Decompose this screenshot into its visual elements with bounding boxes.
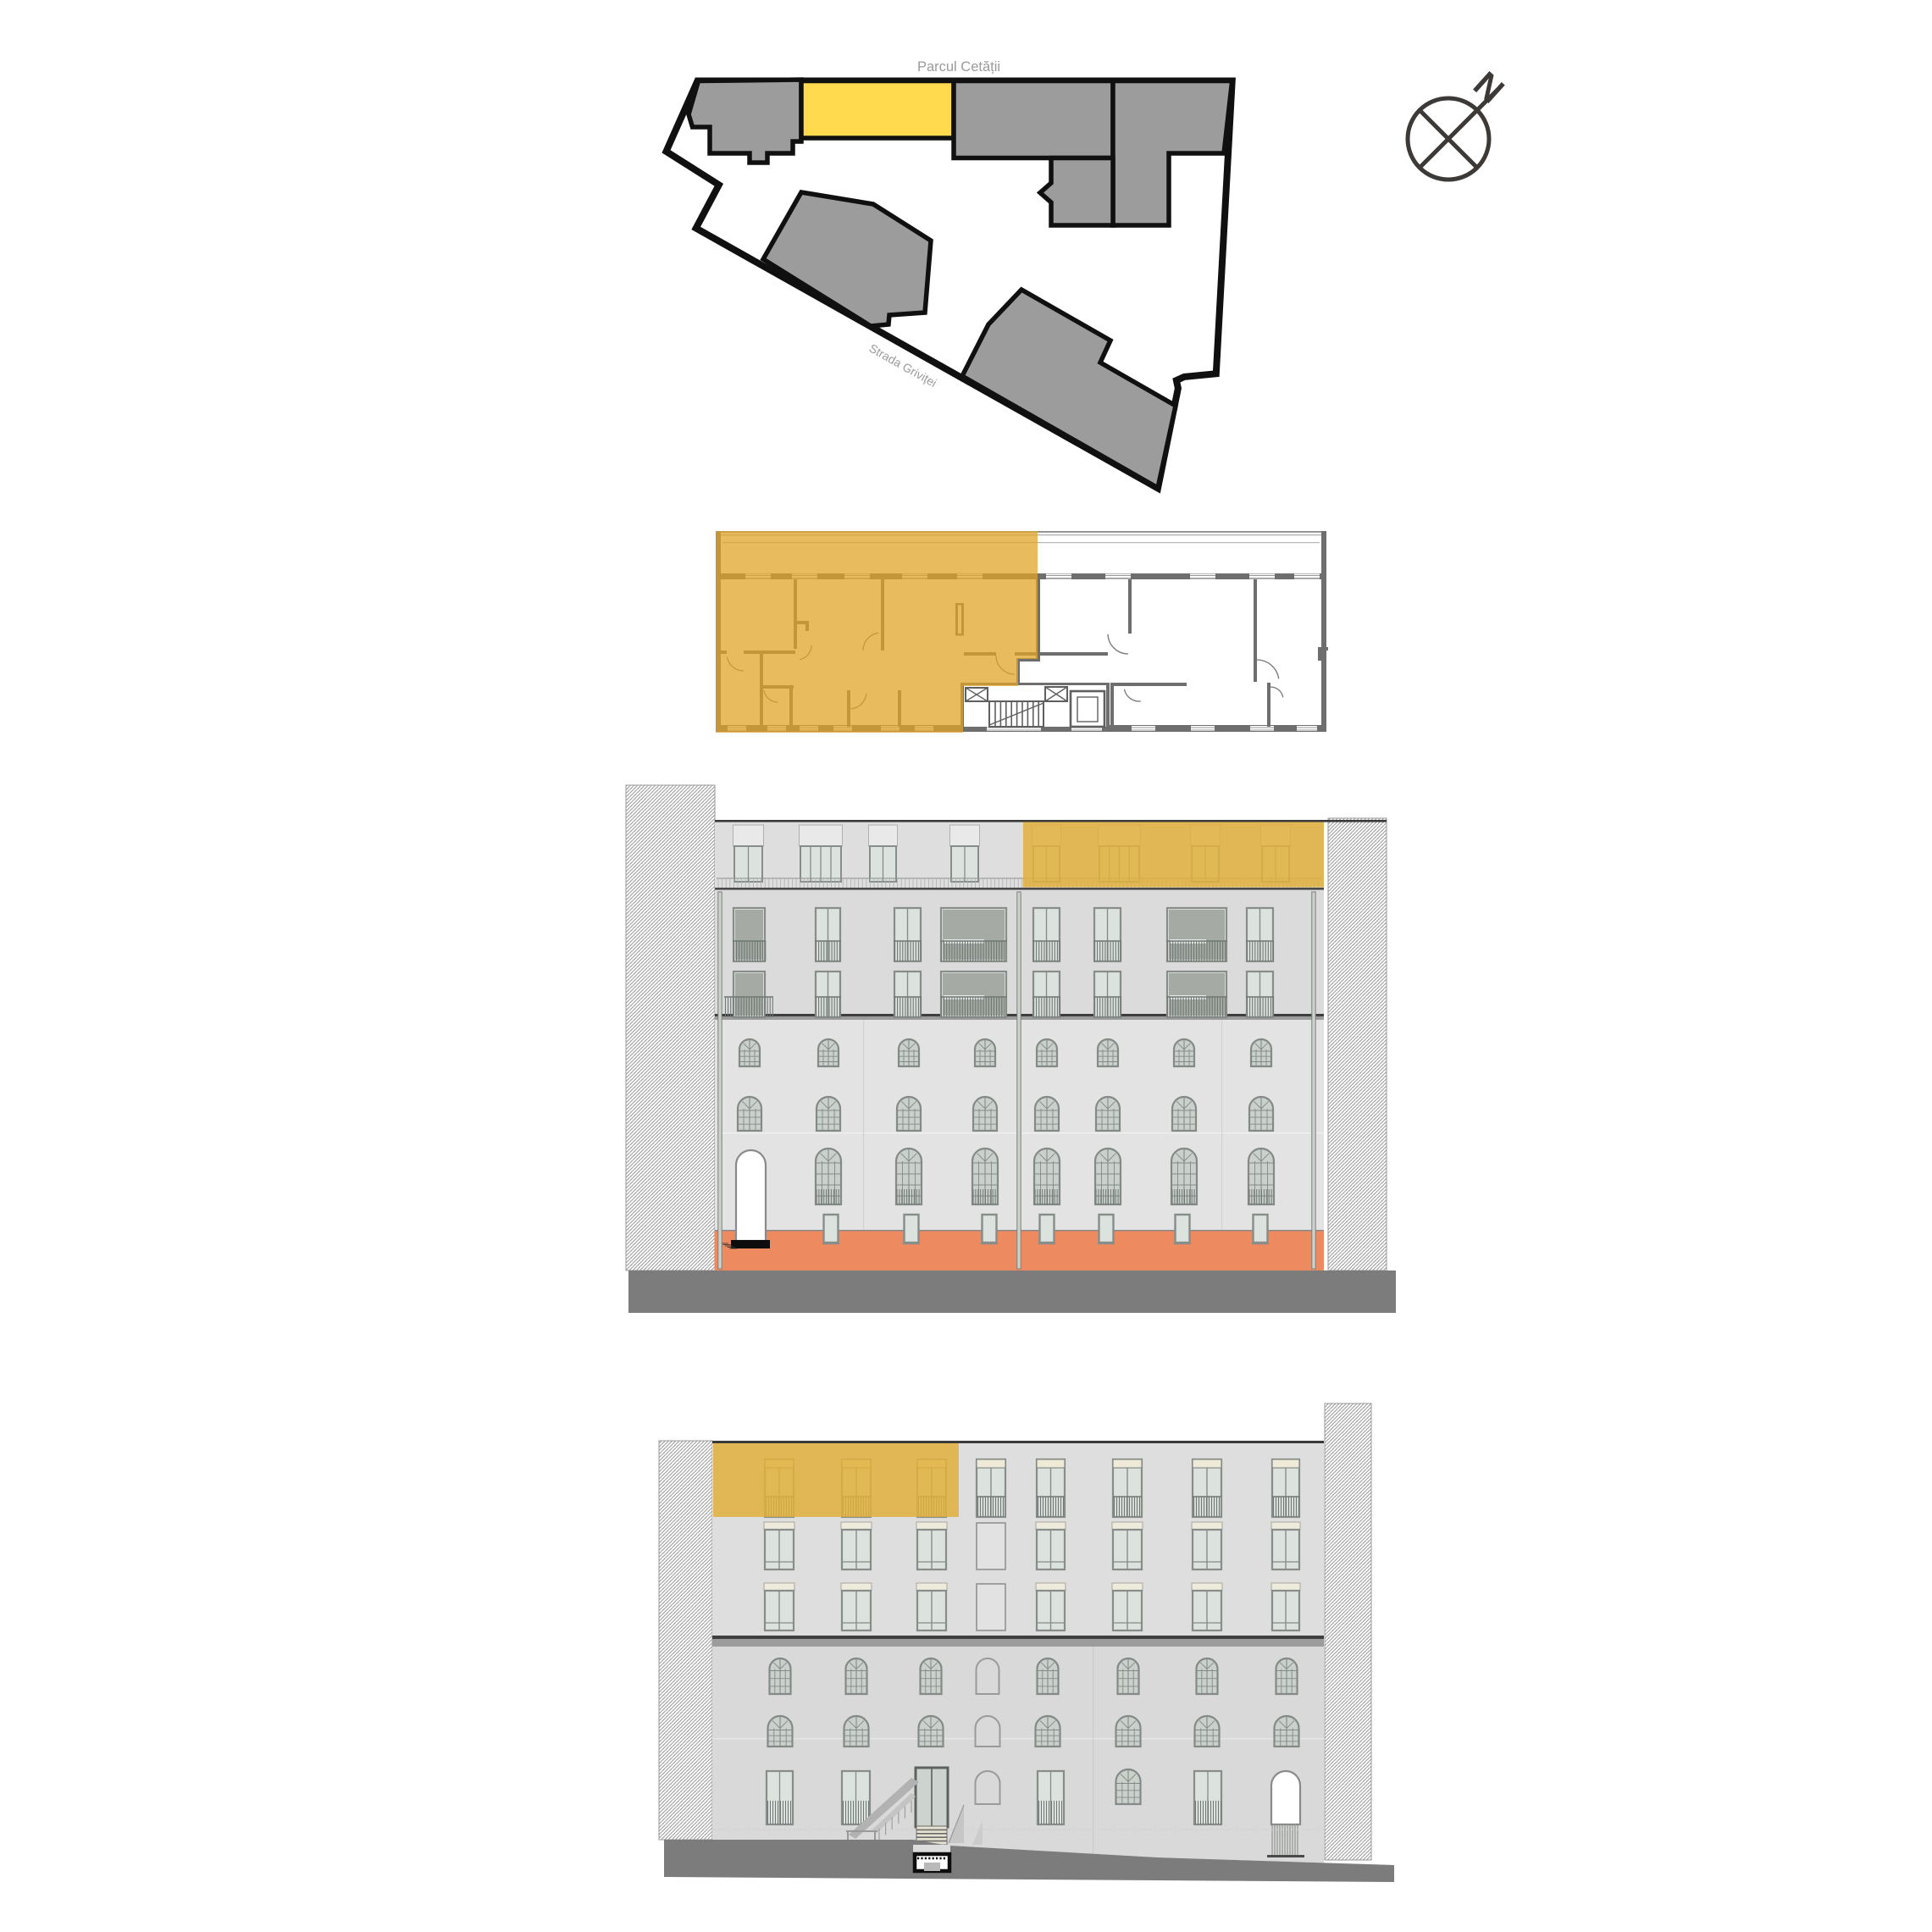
svg-text:Parcul Cetății: Parcul Cetății [917, 59, 1000, 75]
